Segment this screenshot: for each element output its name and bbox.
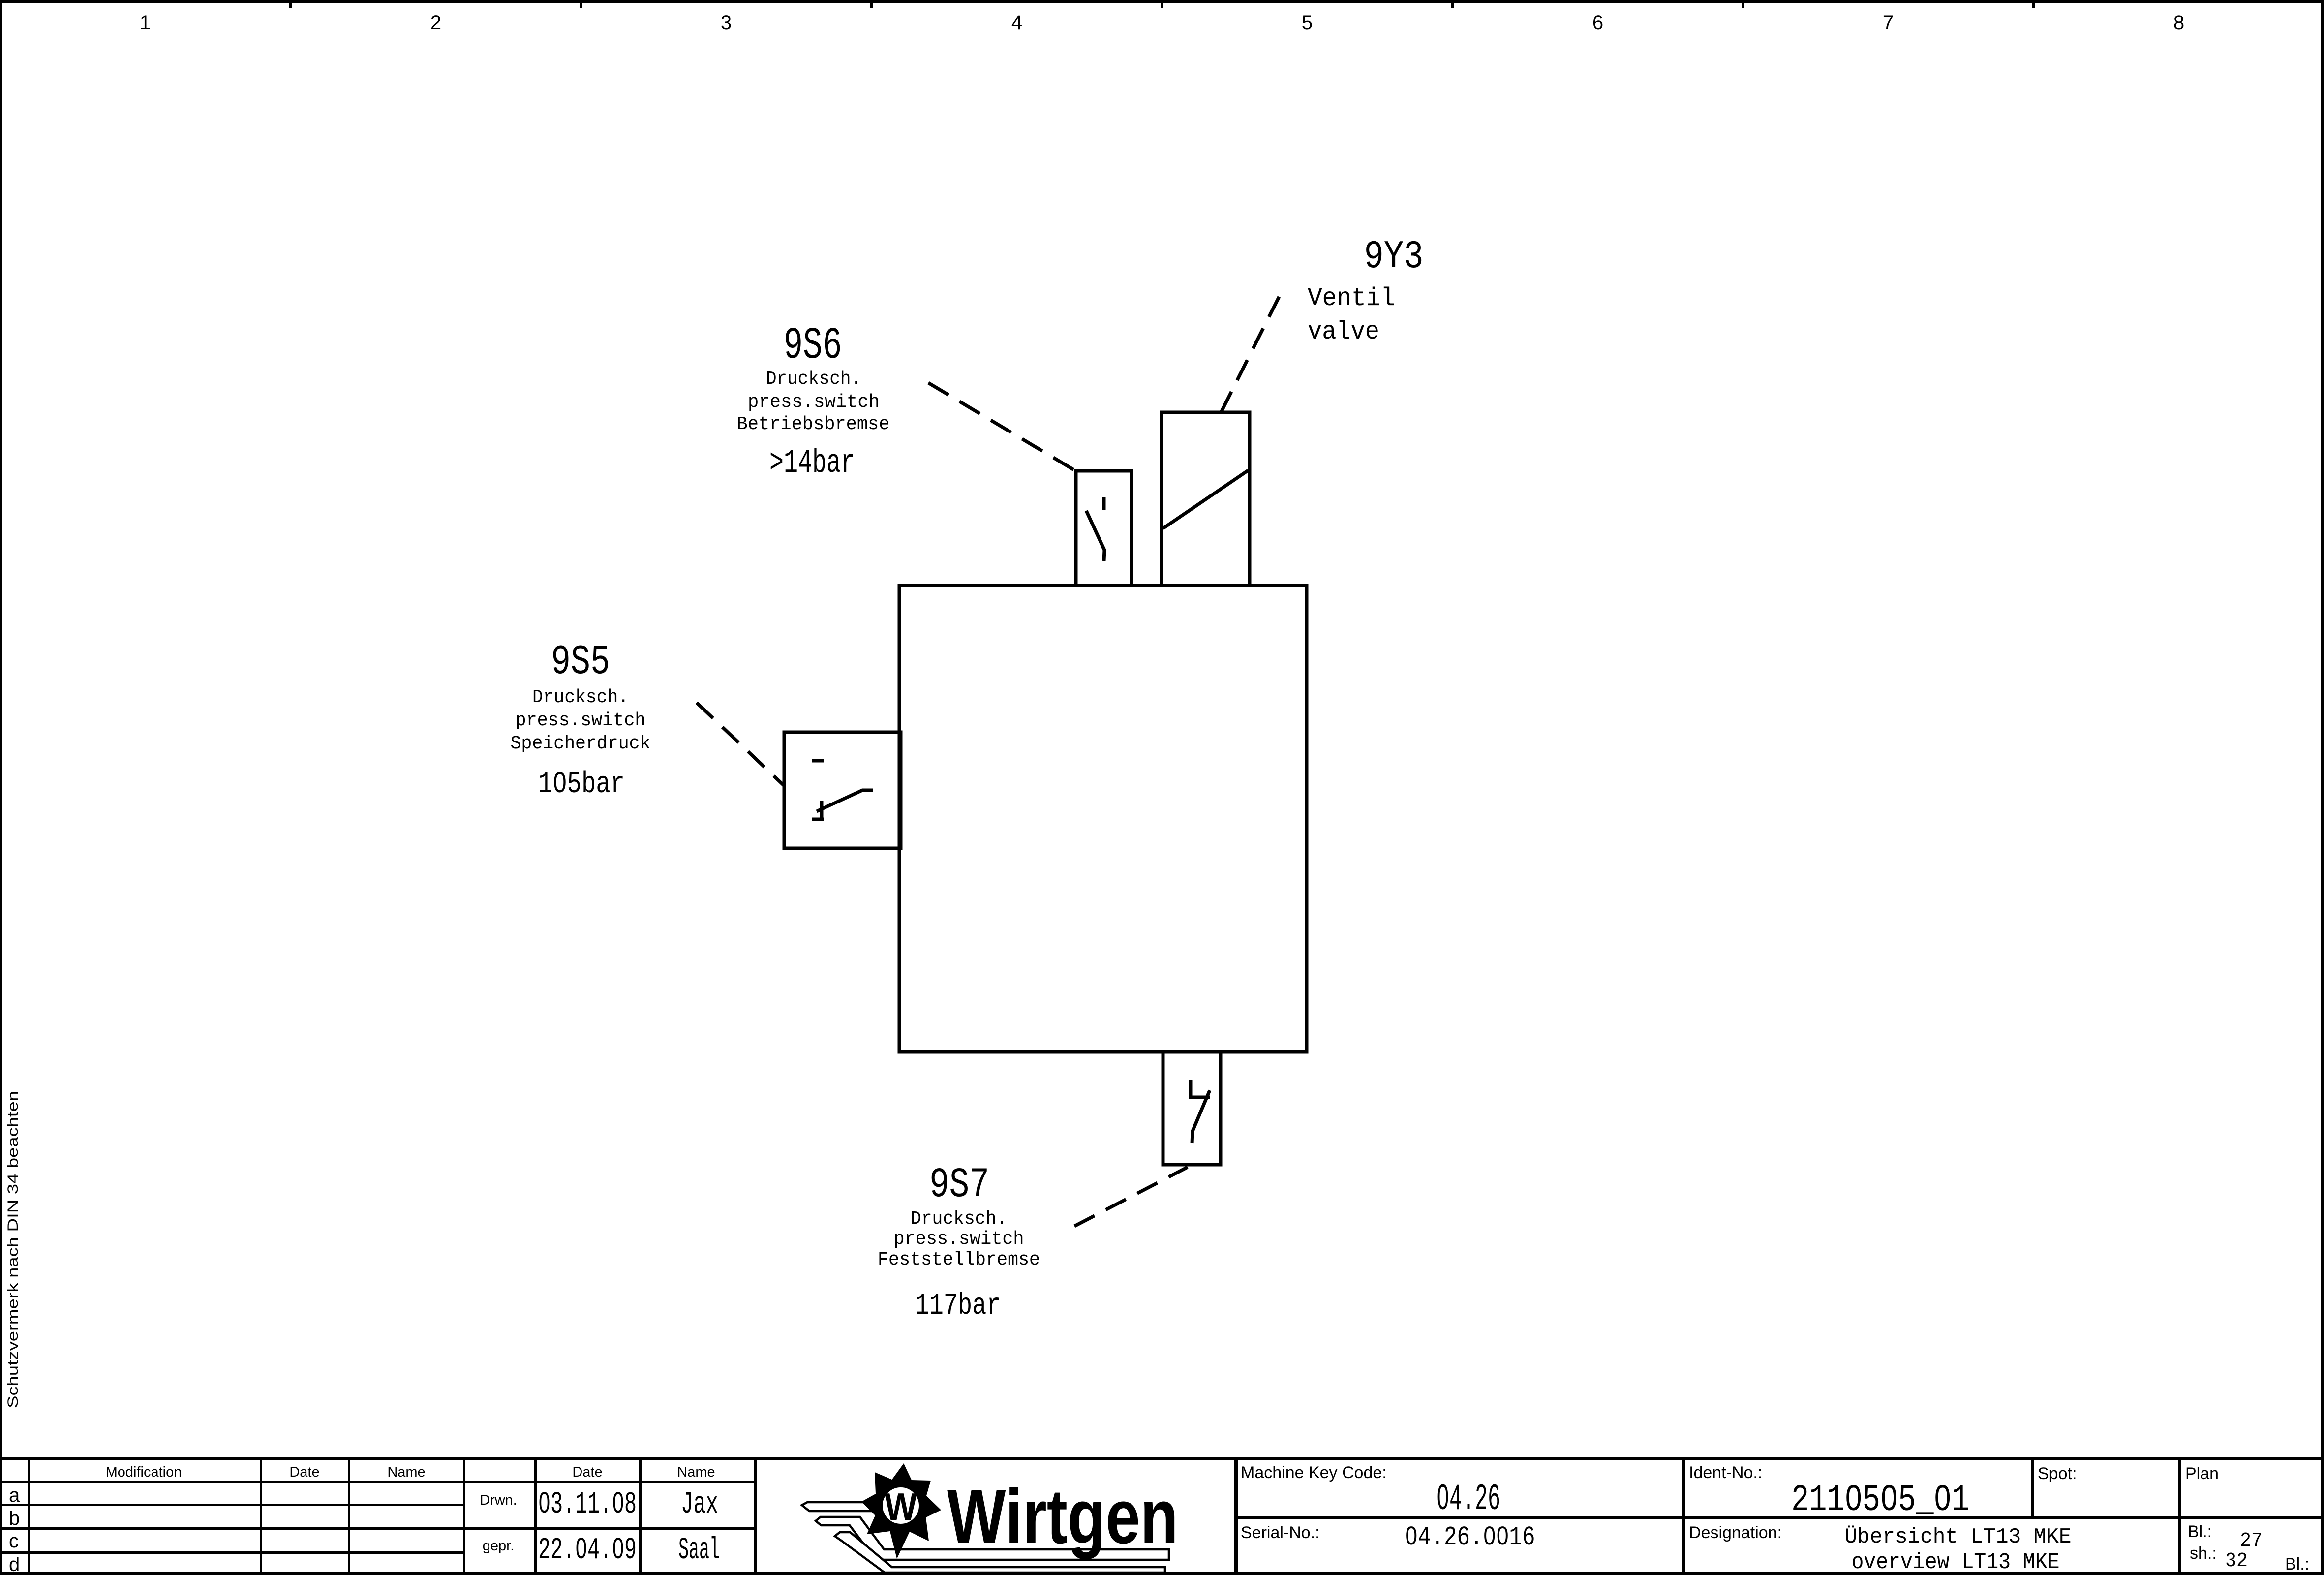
svg-text:press.switch: press.switch: [516, 710, 646, 731]
svg-text:Designation:: Designation:: [1689, 1523, 1782, 1542]
svg-text:Saal: Saal: [678, 1533, 720, 1568]
svg-text:>14bar: >14bar: [769, 444, 855, 482]
svg-text:22.04.09: 22.04.09: [538, 1533, 637, 1568]
svg-text:Date: Date: [572, 1464, 602, 1480]
svg-text:sh.:: sh.:: [2190, 1544, 2217, 1563]
svg-text:Machine Key Code:: Machine Key Code:: [1241, 1463, 1387, 1482]
svg-text:9Y3: 9Y3: [1364, 235, 1424, 279]
svg-text:overview LT13 MKE: overview LT13 MKE: [1852, 1550, 2060, 1575]
svg-text:32: 32: [2225, 1550, 2248, 1573]
svg-text:9S7: 9S7: [929, 1161, 989, 1209]
svg-text:Spot:: Spot:: [2038, 1464, 2077, 1483]
svg-text:c: c: [9, 1530, 19, 1552]
svg-text:7: 7: [1883, 12, 1894, 33]
svg-text:105bar: 105bar: [538, 768, 625, 802]
svg-text:Serial-No.:: Serial-No.:: [1241, 1523, 1320, 1542]
svg-text:Betriebsbremse: Betriebsbremse: [737, 414, 890, 435]
svg-text:04.26.0016: 04.26.0016: [1405, 1522, 1535, 1553]
svg-text:Feststellbremse: Feststellbremse: [878, 1249, 1040, 1270]
svg-text:1: 1: [140, 12, 151, 33]
svg-text:Name: Name: [677, 1464, 715, 1480]
svg-text:b: b: [9, 1508, 20, 1529]
svg-text:a: a: [9, 1484, 20, 1506]
svg-text:Name: Name: [387, 1464, 425, 1480]
svg-text:Ident-No.:: Ident-No.:: [1689, 1463, 1762, 1482]
svg-text:W: W: [885, 1485, 917, 1528]
svg-text:valve: valve: [1308, 317, 1379, 346]
svg-text:Modification: Modification: [106, 1464, 182, 1480]
svg-text:Übersicht LT13 MKE: Übersicht LT13 MKE: [1845, 1525, 2072, 1549]
svg-text:6: 6: [1592, 12, 1603, 33]
svg-text:Bl.:: Bl.:: [2285, 1555, 2309, 1574]
svg-text:d: d: [9, 1554, 20, 1575]
svg-text:8: 8: [2173, 12, 2184, 33]
svg-text:Drwn.: Drwn.: [480, 1492, 517, 1508]
svg-text:press.switch: press.switch: [748, 392, 880, 413]
svg-text:4: 4: [1011, 12, 1022, 33]
svg-text:04.26: 04.26: [1437, 1479, 1500, 1520]
svg-text:5: 5: [1302, 12, 1313, 33]
svg-text:Drucksch.: Drucksch.: [911, 1208, 1007, 1230]
svg-text:Jax: Jax: [681, 1487, 718, 1522]
svg-text:Ventil: Ventil: [1308, 284, 1395, 313]
svg-text:Drucksch.: Drucksch.: [766, 369, 861, 390]
svg-text:117bar: 117bar: [915, 1289, 1001, 1323]
svg-text:2: 2: [430, 12, 441, 33]
svg-text:9S6: 9S6: [784, 321, 842, 371]
svg-text:Plan: Plan: [2185, 1464, 2219, 1483]
svg-text:gepr.: gepr.: [483, 1538, 515, 1554]
svg-text:Speicherdruck: Speicherdruck: [511, 733, 651, 754]
svg-text:press.switch: press.switch: [894, 1229, 1024, 1250]
svg-text:27: 27: [2240, 1530, 2263, 1552]
svg-text:Drucksch.: Drucksch.: [532, 687, 629, 708]
svg-text:3: 3: [721, 12, 732, 33]
svg-text:03.11.08: 03.11.08: [538, 1487, 637, 1522]
svg-text:Date: Date: [289, 1464, 319, 1480]
svg-text:9S5: 9S5: [551, 639, 610, 686]
svg-text:Schutzvermerk nach DIN 34 beac: Schutzvermerk nach DIN 34 beachten: [5, 1091, 21, 1408]
svg-text:Bl.:: Bl.:: [2188, 1522, 2212, 1541]
svg-text:Wirtgen: Wirtgen: [947, 1474, 1178, 1560]
